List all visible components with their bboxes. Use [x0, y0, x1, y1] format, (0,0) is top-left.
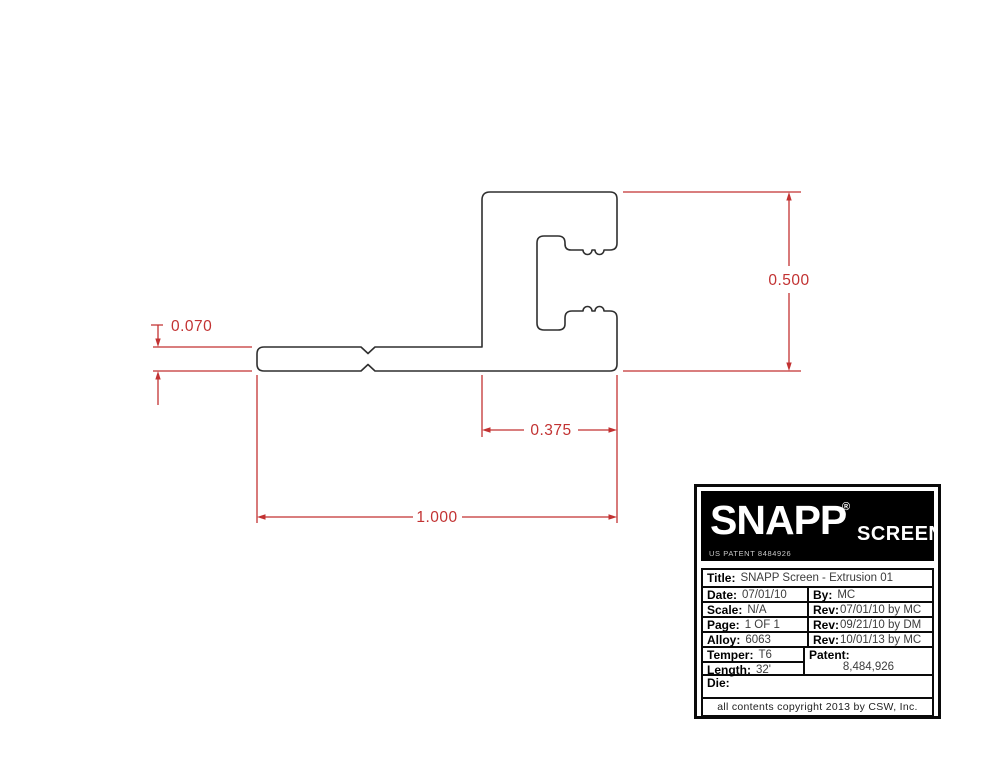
extension-lines — [482, 375, 617, 523]
alloy-rev-row: Alloy: 6063 Rev: 10/01/13 by MC — [703, 633, 932, 648]
die-label: Die: — [707, 676, 730, 690]
temper-label: Temper: — [707, 648, 753, 662]
logo-product-text: SCREEN — [857, 523, 934, 546]
title-value: SNAPP Screen - Extrusion 01 — [740, 572, 893, 584]
dimension-clamp-width — [482, 375, 617, 523]
dimension-label-overall-height: 0.500 — [768, 272, 809, 289]
length-row: Length: 32' — [703, 663, 803, 676]
scale-rev-row: Scale: N/A Rev: 07/01/10 by MC — [703, 603, 932, 618]
date-label: Date: — [707, 588, 737, 602]
temper-row: Temper: T6 — [703, 648, 803, 663]
extrusion-outline — [257, 192, 617, 371]
rev1-label: Rev: — [813, 603, 839, 617]
snapp-screen-logo: SNAPP ® SCREEN US PATENT 8484926 — [701, 491, 934, 561]
length-value: 32' — [756, 664, 771, 676]
dimension-label-base-thickness: 0.070 — [171, 318, 212, 335]
alloy-value: 6063 — [745, 634, 771, 646]
date-by-row: Date: 07/01/10 By: MC — [703, 588, 932, 603]
page-value: 1 OF 1 — [745, 619, 780, 631]
copyright-text: all contents copyright 2013 by CSW, Inc. — [717, 701, 918, 713]
dimension-base-thickness — [151, 325, 252, 405]
title-block: SNAPP ® SCREEN US PATENT 8484926 Title: … — [694, 484, 941, 719]
scale-value: N/A — [747, 604, 766, 616]
leader-lines — [151, 325, 163, 405]
by-value: MC — [837, 589, 855, 601]
die-row: Die: — [703, 676, 932, 699]
registered-trademark-icon: ® — [842, 501, 850, 513]
title-block-grid: Title: SNAPP Screen - Extrusion 01 Date:… — [701, 568, 934, 717]
patent-value: 8,484,926 — [805, 661, 932, 673]
copyright-row: all contents copyright 2013 by CSW, Inc. — [703, 699, 932, 715]
temper-length-patent-row: Temper: T6 Length: 32' Patent: 8,484,926 — [703, 648, 932, 676]
logo-patent-note: US PATENT 8484926 — [709, 549, 791, 558]
dimension-label-clamp-width: 0.375 — [530, 422, 571, 439]
date-value: 07/01/10 — [742, 589, 787, 601]
rev3-value: 10/01/13 by MC — [840, 634, 921, 646]
rev3-label: Rev: — [813, 633, 839, 647]
dimension-overall-length — [257, 375, 611, 523]
temper-value: T6 — [758, 649, 771, 661]
title-label: Title: — [707, 571, 735, 585]
by-label: By: — [813, 588, 832, 602]
patent-label: Patent: — [809, 648, 850, 662]
dimension-arrows-0070 — [155, 339, 160, 380]
alloy-label: Alloy: — [707, 633, 740, 647]
rev2-value: 09/21/10 by DM — [840, 619, 921, 631]
extension-lines — [153, 347, 252, 371]
page-rev-row: Page: 1 OF 1 Rev: 09/21/10 by DM — [703, 618, 932, 633]
logo-brand-text: SNAPP — [710, 500, 846, 541]
rev2-label: Rev: — [813, 618, 839, 632]
length-label: Length: — [707, 663, 751, 677]
scale-label: Scale: — [707, 603, 742, 617]
rev1-value: 07/01/10 by MC — [840, 604, 921, 616]
title-row: Title: SNAPP Screen - Extrusion 01 — [703, 570, 932, 588]
patent-cell: Patent: 8,484,926 — [805, 648, 932, 674]
dimension-label-overall-length: 1.000 — [416, 509, 457, 526]
page-label: Page: — [707, 618, 740, 632]
